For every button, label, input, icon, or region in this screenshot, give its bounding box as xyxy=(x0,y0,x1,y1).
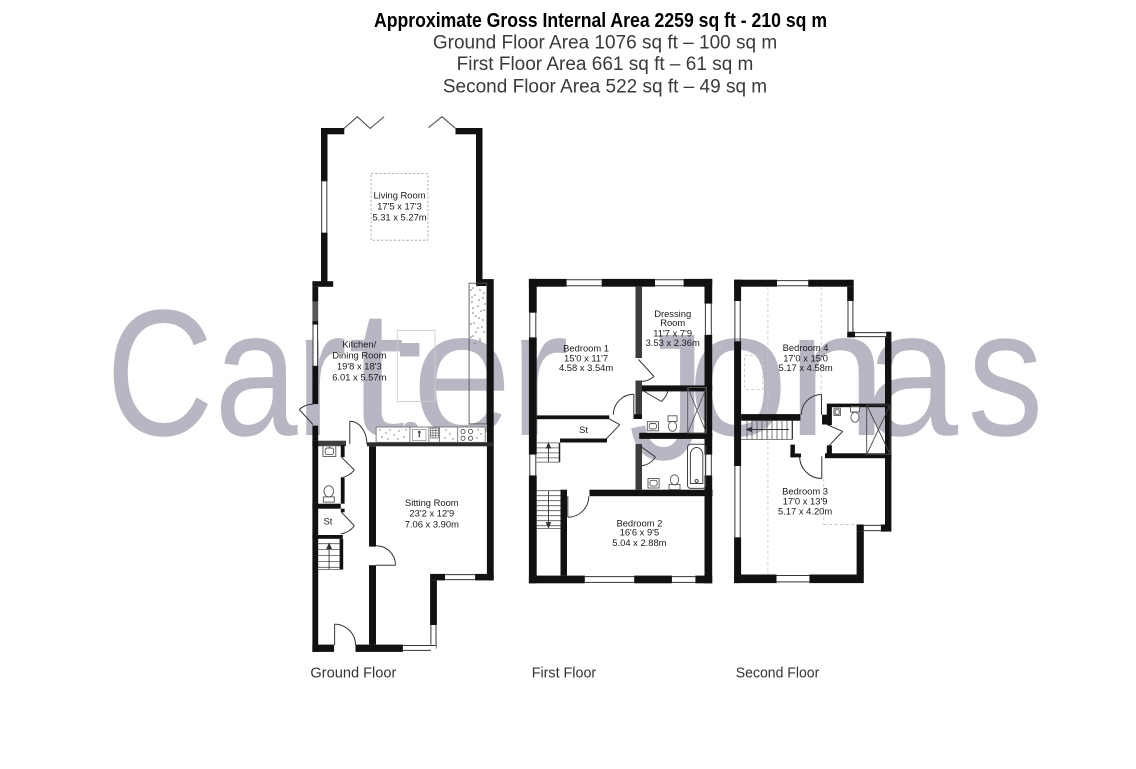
svg-text:7.06 x 3.90m: 7.06 x 3.90m xyxy=(405,519,459,530)
svg-text:Room: Room xyxy=(660,317,685,328)
svg-text:Kitchen/: Kitchen/ xyxy=(342,338,376,349)
svg-text:Sitting Room: Sitting Room xyxy=(405,497,459,508)
svg-text:23'2 x 12'9: 23'2 x 12'9 xyxy=(409,508,454,519)
svg-text:Second Floor: Second Floor xyxy=(736,665,820,682)
svg-text:a: a xyxy=(215,273,298,474)
svg-text:6.01 x 5.57m: 6.01 x 5.57m xyxy=(332,371,386,382)
svg-text:19'8 x 18'3: 19'8 x 18'3 xyxy=(337,361,382,372)
svg-text:Living Room: Living Room xyxy=(373,190,425,201)
svg-text:Approximate Gross Internal Are: Approximate Gross Internal Area 2259 sq … xyxy=(374,10,827,32)
svg-text:16'6 x 9'5: 16'6 x 9'5 xyxy=(620,527,660,538)
svg-text:Dining Room: Dining Room xyxy=(332,349,386,360)
svg-text:a: a xyxy=(866,273,959,474)
svg-text:4.58 x 3.54m: 4.58 x 3.54m xyxy=(559,362,613,373)
svg-text:First Floor Area 661 sq ft – 6: First Floor Area 661 sq ft – 61 sq m xyxy=(457,54,754,75)
svg-text:5.17 x 4.20m: 5.17 x 4.20m xyxy=(778,506,832,517)
svg-text:s: s xyxy=(968,273,1044,474)
svg-text:First Floor: First Floor xyxy=(532,665,597,682)
svg-text:St: St xyxy=(579,424,588,435)
svg-text:Bedroom 4: Bedroom 4 xyxy=(783,342,829,353)
svg-text:St: St xyxy=(323,516,332,527)
svg-text:C: C xyxy=(106,273,213,474)
svg-text:3.53 x 2.36m: 3.53 x 2.36m xyxy=(646,337,700,348)
svg-text:Second Floor Area 522 sq ft –: Second Floor Area 522 sq ft – 49 sq m xyxy=(443,77,767,98)
svg-text:Ground Floor: Ground Floor xyxy=(310,665,396,682)
svg-text:17'5 x 17'3: 17'5 x 17'3 xyxy=(377,200,422,211)
svg-text:Ground Floor Area 1076 sq ft –: Ground Floor Area 1076 sq ft – 100 sq m xyxy=(433,32,777,53)
svg-text:5.17 x 4.58m: 5.17 x 4.58m xyxy=(778,362,832,373)
svg-text:5.04 x 2.88m: 5.04 x 2.88m xyxy=(612,537,666,548)
svg-text:5.31 x 5.27m: 5.31 x 5.27m xyxy=(372,211,426,222)
